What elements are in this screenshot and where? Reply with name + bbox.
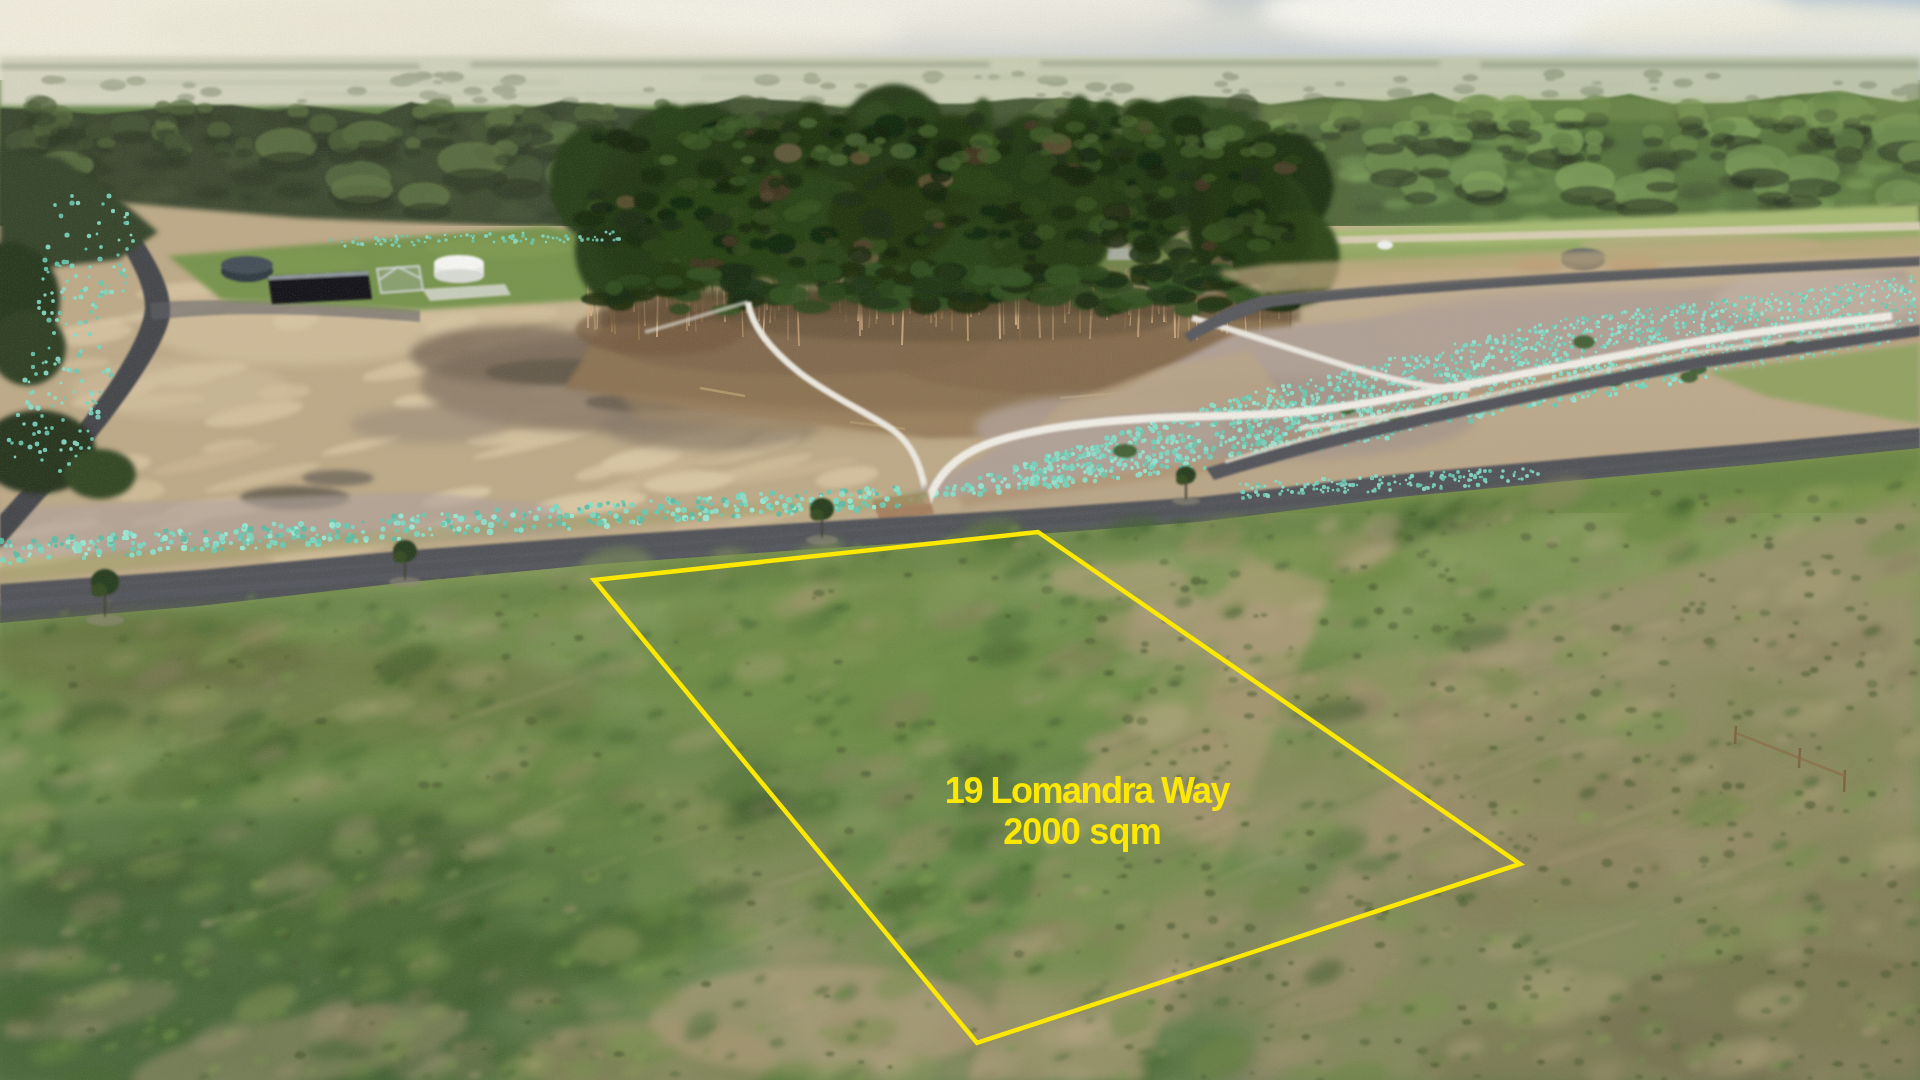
svg-text:19 Lomandra Way: 19 Lomandra Way [945, 770, 1231, 811]
svg-text:2000 sqm: 2000 sqm [1003, 811, 1161, 852]
